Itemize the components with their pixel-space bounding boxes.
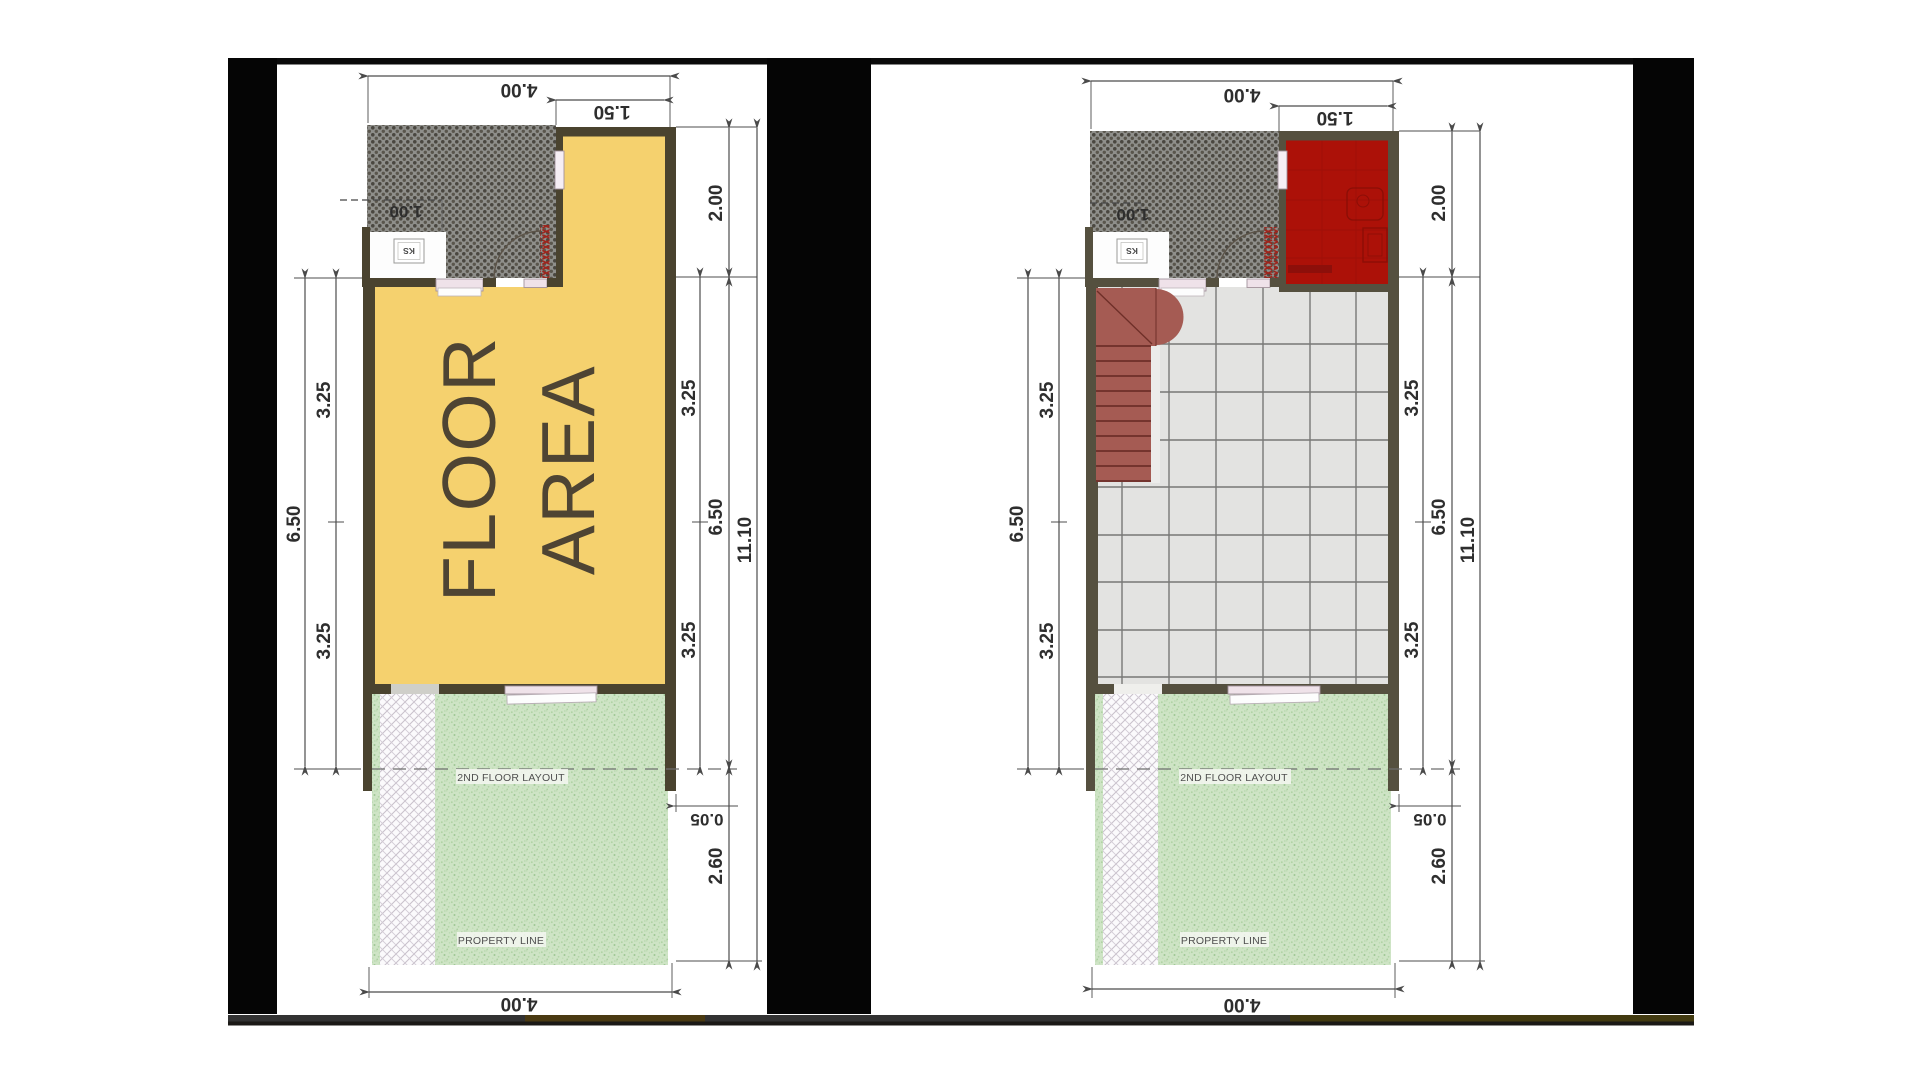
svg-text:3.25: 3.25: [314, 622, 335, 659]
svg-text:3.25: 3.25: [1402, 621, 1423, 658]
svg-text:6.50: 6.50: [1429, 499, 1450, 536]
svg-text:4.00: 4.00: [1224, 84, 1261, 105]
svg-text:PROPERTY LINE: PROPERTY LINE: [1181, 935, 1267, 947]
svg-text:3.25: 3.25: [679, 379, 700, 416]
svg-text:2.00: 2.00: [1429, 185, 1450, 222]
svg-text:1.50: 1.50: [1317, 107, 1354, 128]
svg-text:4.00: 4.00: [501, 79, 538, 100]
svg-text:3.25: 3.25: [314, 381, 335, 418]
svg-text:2ND FLOOR LAYOUT: 2ND FLOOR LAYOUT: [1180, 772, 1288, 784]
svg-text:2.60: 2.60: [706, 848, 727, 885]
svg-text:1.00: 1.00: [1116, 205, 1149, 224]
svg-text:11.10: 11.10: [735, 517, 756, 564]
svg-text:2ND FLOOR LAYOUT: 2ND FLOOR LAYOUT: [457, 772, 565, 784]
svg-text:0.05: 0.05: [1413, 810, 1446, 829]
svg-text:0.05: 0.05: [690, 810, 723, 829]
svg-text:6.50: 6.50: [706, 499, 727, 536]
svg-text:4.00: 4.00: [1224, 994, 1261, 1015]
svg-text:6.50: 6.50: [1007, 506, 1028, 543]
svg-text:11.10: 11.10: [1458, 517, 1479, 564]
svg-text:6.50: 6.50: [284, 506, 305, 543]
svg-text:4.00: 4.00: [501, 993, 538, 1014]
svg-text:3.25: 3.25: [1037, 622, 1058, 659]
svg-text:2.00: 2.00: [706, 185, 727, 222]
svg-text:KS: KS: [1126, 246, 1138, 256]
svg-text:PROPERTY LINE: PROPERTY LINE: [458, 935, 544, 947]
svg-text:KS: KS: [403, 246, 415, 256]
svg-text:2.60: 2.60: [1429, 848, 1450, 885]
svg-text:3.25: 3.25: [1037, 381, 1058, 418]
svg-text:1.50: 1.50: [594, 101, 631, 122]
svg-text:1.00: 1.00: [389, 202, 422, 221]
svg-text:3.25: 3.25: [679, 621, 700, 658]
svg-text:3.25: 3.25: [1402, 379, 1423, 416]
